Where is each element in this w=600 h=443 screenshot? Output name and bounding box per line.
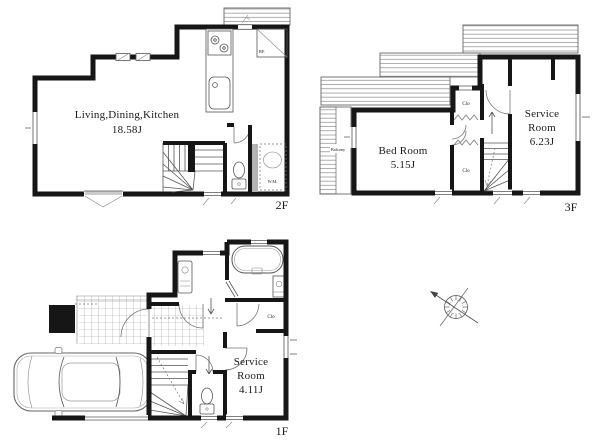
room-name-service1f-1: Service [234,356,268,368]
car [14,348,151,417]
floor-plan-svg: RF. W.M. [0,0,600,443]
floor-label-1f: 1F [276,424,289,438]
bay-window [85,196,122,207]
kitchen-counter [206,29,233,112]
closet-label-1f: Clo [267,315,275,320]
vanity [178,261,192,293]
door-arc-closet-1f [237,303,259,326]
room-name-ldk: Living,Dining,Kitchen [75,109,180,121]
room-area-ldk: 18.58J [112,124,143,136]
car-mirror-top [55,348,62,354]
room-area-bedroom: 5.15J [391,159,416,171]
room-name-service1f-2: Room [237,370,265,382]
room-name-bedroom: Bed Room [379,145,428,157]
pipe-space [251,144,258,192]
closet-label-lower: Clo [462,169,470,174]
porch-block [49,305,75,333]
floor-1f: Clo Service Room 4.11J 1F [14,239,297,439]
washer-label: W.M. [268,179,278,184]
bathroom [226,246,285,297]
room-area-service1f: 4.11J [239,384,264,396]
stair-post-2f [188,143,195,172]
arrow-hall [208,298,214,314]
room-name-service3f-2: Room [528,122,556,134]
balcony-2f [224,8,290,25]
closet-label-upper: Clo [462,102,470,107]
balcony-label: Balcony [331,147,346,152]
entrance-tile-left [79,296,147,344]
stairs-1f [150,357,188,416]
floor-label-2f: 2F [276,198,289,212]
entrance-tile-right [152,305,204,346]
bath-door [226,281,238,297]
floor-plan-page: RF. W.M. [0,0,600,443]
refrigerator-label: RF. [259,49,265,54]
room-area-service3f: 6.23J [530,136,555,148]
door-arc-toilet-1f [196,355,213,372]
floor-2f: RF. W.M. [25,8,290,212]
floor-3f: Balcony [320,25,590,214]
toilet-1f [200,388,214,414]
compass-icon [430,288,478,326]
floor-label-3f: 3F [565,200,578,214]
room-name-service3f-1: Service [525,108,559,120]
balcony-3f: Balcony [320,107,351,194]
garage-opening [85,415,148,422]
